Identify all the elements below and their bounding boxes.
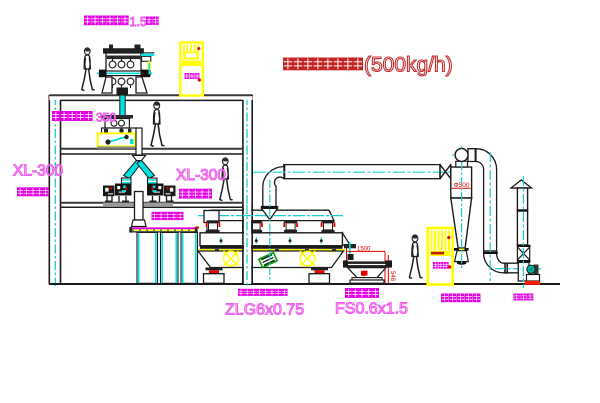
- svg-text:XL-300: XL-300: [176, 167, 226, 184]
- svg-text:XL-300: XL-300: [13, 163, 63, 180]
- svg-text:1500: 1500: [357, 246, 371, 252]
- svg-text:FS0.6x1.5: FS0.6x1.5: [335, 301, 408, 318]
- svg-text:(500kg/h): (500kg/h): [364, 54, 453, 77]
- svg-text:548: 548: [389, 271, 395, 282]
- svg-text:350: 350: [96, 111, 116, 125]
- svg-text:1.5: 1.5: [130, 15, 147, 29]
- svg-text:ZLG6x0.75: ZLG6x0.75: [225, 302, 304, 319]
